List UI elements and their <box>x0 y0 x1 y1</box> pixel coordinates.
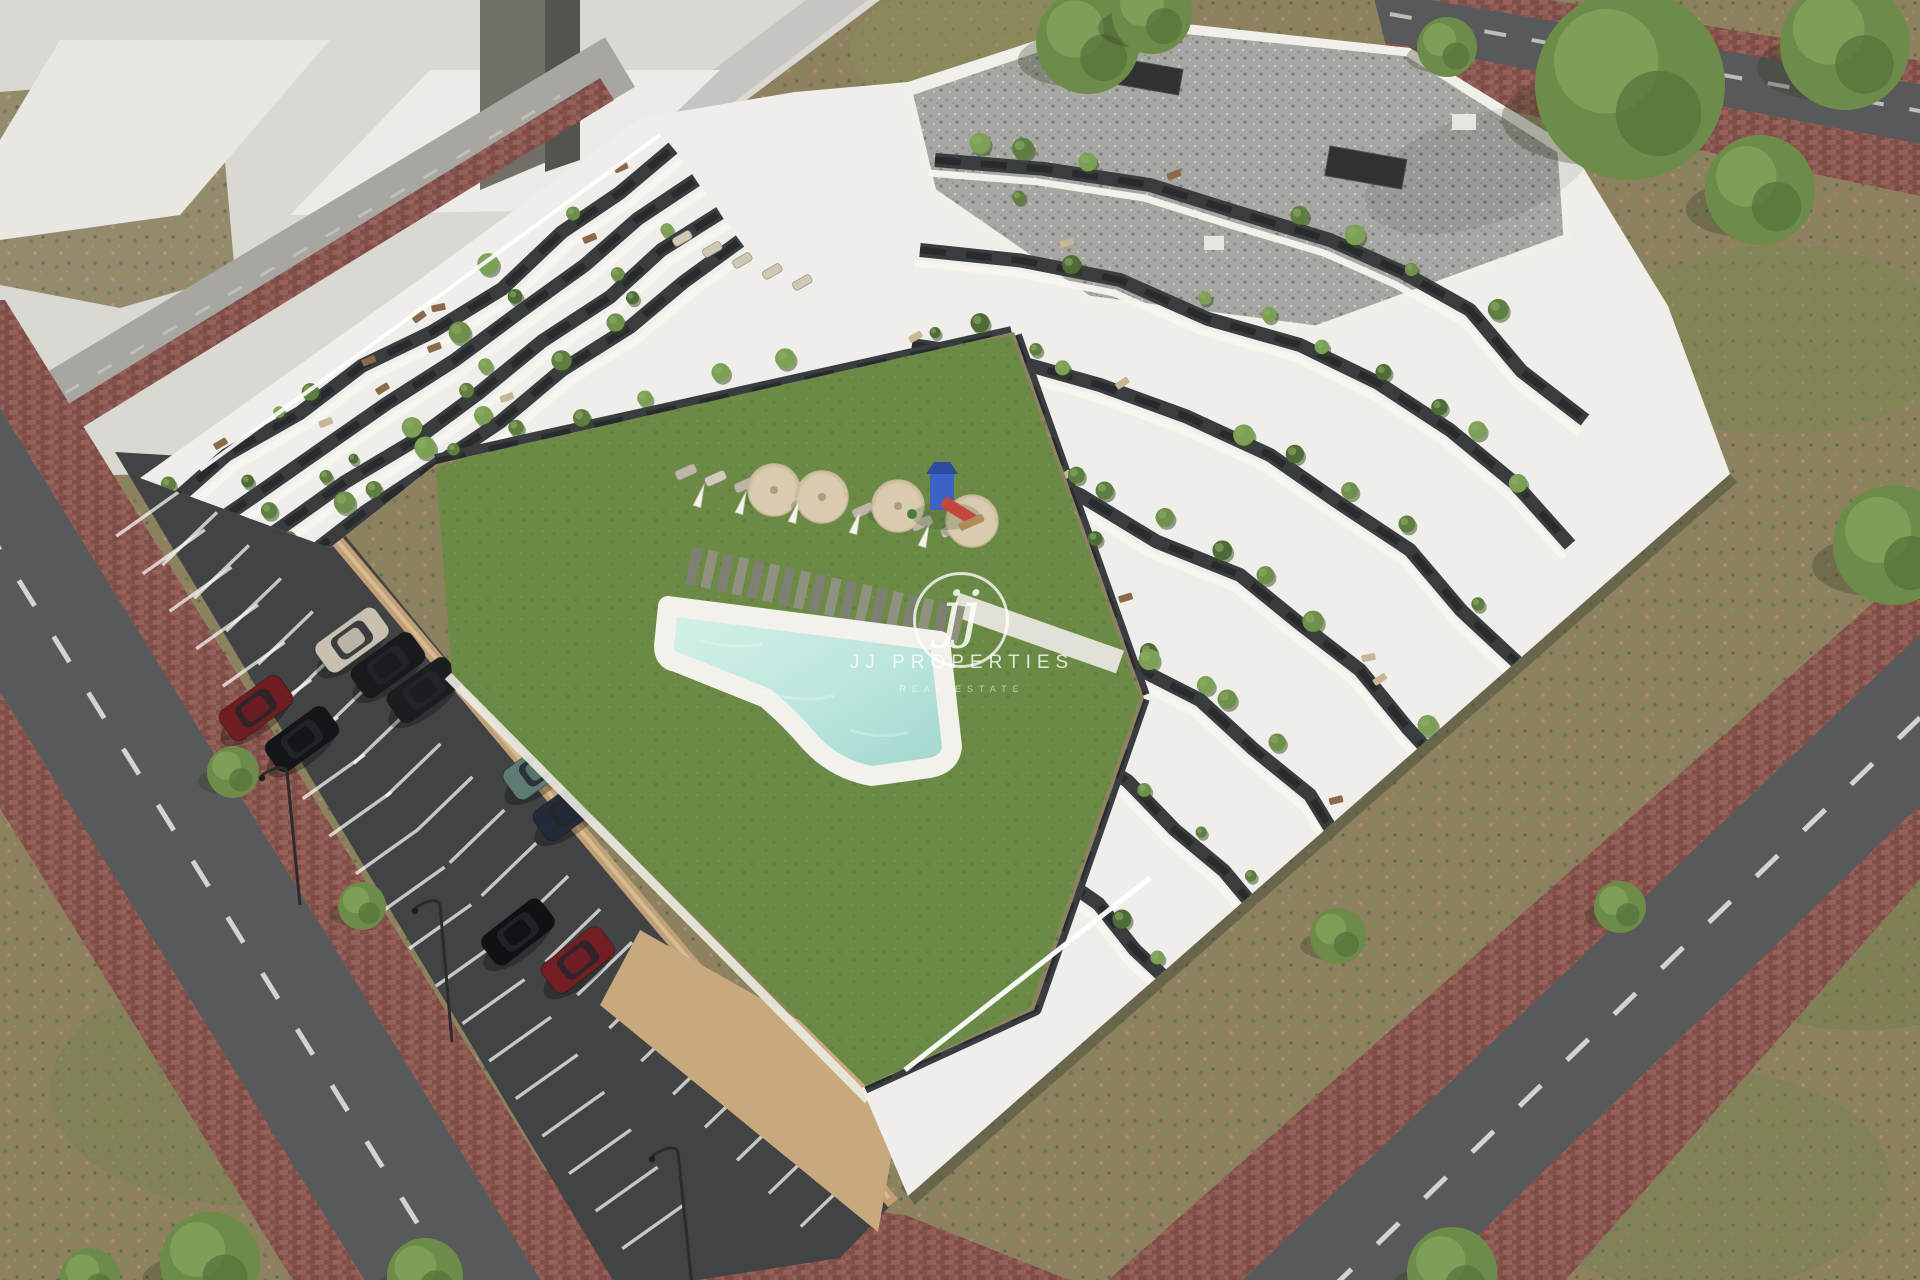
plant-highlight <box>1246 871 1251 876</box>
plant-highlight <box>662 225 668 231</box>
plant-highlight <box>1081 155 1089 163</box>
plant-highlight <box>451 324 461 334</box>
plant-highlight <box>461 385 468 392</box>
plant-highlight <box>1433 401 1440 408</box>
plant-highlight <box>1305 613 1315 623</box>
umbrella-pole-top <box>894 502 902 510</box>
umbrella-pole-top <box>818 493 826 501</box>
lamp-head <box>412 908 418 914</box>
plant-highlight <box>1473 599 1479 605</box>
plant-highlight <box>1090 533 1097 540</box>
plant-highlight <box>1263 309 1270 316</box>
plant-highlight <box>243 476 249 482</box>
plant-highlight <box>336 494 346 504</box>
render-canvas: jj JJ PROPERTIES REAL ESTATE <box>0 0 1920 1280</box>
plant-highlight <box>1070 469 1078 477</box>
plant-highlight <box>350 455 355 460</box>
tree-canopy-dark <box>1616 71 1702 157</box>
tree-canopy-dark <box>1752 182 1802 232</box>
plant-highlight <box>1064 257 1073 266</box>
spring-rider <box>907 509 917 519</box>
tree-canopy-dark <box>1443 43 1470 70</box>
plant-highlight <box>480 360 486 366</box>
tree-canopy-dark <box>1334 932 1359 957</box>
plant-highlight <box>1420 718 1429 727</box>
plant-highlight <box>1347 227 1356 236</box>
plant-highlight <box>1378 366 1385 373</box>
tree-canopy-dark <box>358 902 380 924</box>
plant-highlight <box>972 135 981 144</box>
plant-highlight <box>1293 208 1301 216</box>
plant-highlight <box>639 392 646 399</box>
tree-canopy-dark <box>229 768 252 791</box>
plant-highlight <box>510 422 517 429</box>
plant-highlight <box>554 353 563 362</box>
plant-highlight <box>1152 952 1158 958</box>
plant-highlight <box>1141 652 1151 662</box>
plant-highlight <box>1015 140 1025 150</box>
plant-highlight <box>1139 785 1145 791</box>
plant-highlight <box>321 472 327 478</box>
tree-canopy-dark <box>1835 35 1894 94</box>
plant-highlight <box>404 420 413 429</box>
plant-highlight <box>263 504 270 511</box>
roof-ac-unit <box>1452 114 1476 130</box>
plant-highlight <box>778 351 787 360</box>
plant-highlight <box>609 316 617 324</box>
aerial-render-svg <box>0 0 1920 1280</box>
tree-canopy-dark <box>1146 8 1182 44</box>
plant-highlight <box>1115 912 1124 921</box>
plant-highlight <box>1220 692 1229 701</box>
plant-highlight <box>1014 192 1020 198</box>
plant-highlight <box>1236 427 1246 437</box>
plant-highlight <box>510 291 517 298</box>
plant-highlight <box>1215 543 1224 552</box>
plant-highlight <box>476 408 484 416</box>
umbrella-pole-top <box>770 486 778 494</box>
tree-canopy-dark <box>1616 903 1639 926</box>
plant-highlight <box>1288 447 1296 455</box>
plant-highlight <box>163 478 170 485</box>
plant-highlight <box>931 328 936 333</box>
plant-highlight <box>1259 568 1267 576</box>
roof-ac-unit <box>1204 236 1224 250</box>
plant-highlight <box>1316 341 1323 348</box>
plant-highlight <box>568 208 574 214</box>
lamp-head <box>649 1156 655 1162</box>
plant-highlight <box>1031 345 1037 351</box>
plant-highlight <box>368 483 375 490</box>
plant-highlight <box>973 316 982 325</box>
plant-highlight <box>1197 828 1202 833</box>
plant-highlight <box>628 293 634 299</box>
plant-highlight <box>1098 484 1106 492</box>
plant-highlight <box>1511 476 1519 484</box>
plant-highlight <box>417 439 427 449</box>
plant-highlight <box>1199 678 1207 686</box>
plant-highlight <box>1401 518 1409 526</box>
plant-highlight <box>714 365 722 373</box>
plant-highlight <box>1490 302 1499 311</box>
plant-highlight <box>575 411 583 419</box>
plant-highlight <box>1158 510 1166 518</box>
plant-highlight <box>612 269 618 275</box>
plant-highlight <box>1406 264 1412 270</box>
plant-highlight <box>1200 293 1206 299</box>
plant-highlight <box>1271 736 1279 744</box>
lamp-head <box>259 775 265 781</box>
plant-highlight <box>449 445 455 451</box>
plant-highlight <box>1057 362 1064 369</box>
plant-highlight <box>1343 484 1351 492</box>
plant-highlight <box>1471 423 1479 431</box>
